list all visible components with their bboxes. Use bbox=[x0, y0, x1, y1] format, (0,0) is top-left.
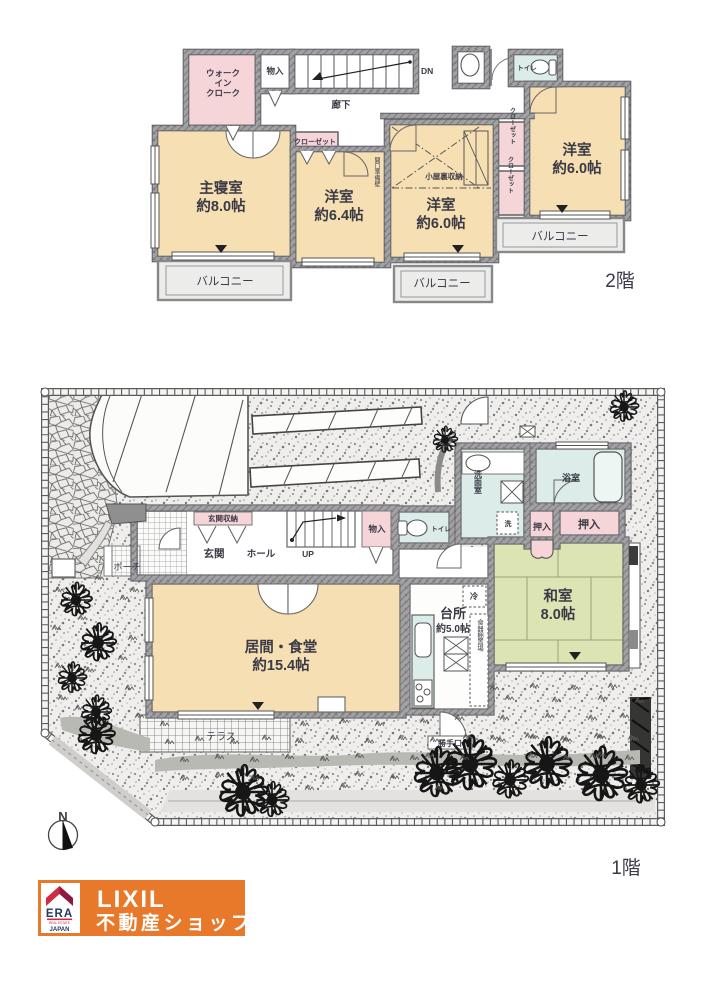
svg-text:和室: 和室 bbox=[544, 587, 573, 605]
svg-text:8.0帖: 8.0帖 bbox=[541, 605, 576, 623]
svg-text:DN: DN bbox=[421, 66, 433, 76]
svg-text:約5.0帖: 約5.0帖 bbox=[436, 622, 470, 635]
svg-text:2階: 2階 bbox=[605, 270, 635, 292]
svg-text:洗面室: 洗面室 bbox=[474, 469, 483, 495]
svg-text:JAPAN: JAPAN bbox=[50, 927, 70, 933]
svg-text:トイレ: トイレ bbox=[517, 64, 537, 72]
svg-text:トイレ: トイレ bbox=[431, 525, 451, 533]
svg-text:押入: 押入 bbox=[533, 521, 551, 532]
svg-text:約6.4帖: 約6.4帖 bbox=[314, 206, 364, 224]
svg-text:バルコニー: バルコニー bbox=[196, 275, 253, 288]
svg-text:台所: 台所 bbox=[440, 606, 466, 621]
svg-text:バルコニー: バルコニー bbox=[413, 277, 470, 290]
svg-text:ホール: ホール bbox=[247, 549, 276, 560]
svg-text:玄関収納: 玄関収納 bbox=[208, 513, 238, 523]
svg-text:居間・食堂: 居間・食堂 bbox=[245, 638, 318, 656]
svg-text:約15.4帖: 約15.4帖 bbox=[252, 656, 310, 674]
svg-text:バルコニー: バルコニー bbox=[531, 230, 588, 243]
svg-text:物入: 物入 bbox=[368, 524, 386, 534]
svg-text:小屋裏収納: 小屋裏収納 bbox=[425, 171, 463, 181]
svg-text:主寝室: 主寝室 bbox=[199, 179, 243, 197]
svg-text:LIXIL: LIXIL bbox=[97, 886, 166, 913]
svg-text:約6.0帖: 約6.0帖 bbox=[552, 159, 602, 177]
svg-text:クローゼット: クローゼット bbox=[294, 137, 336, 146]
svg-text:洋室: 洋室 bbox=[325, 188, 354, 206]
svg-text:押入: 押入 bbox=[578, 517, 600, 531]
svg-text:開口準備壁: 開口準備壁 bbox=[373, 157, 380, 187]
svg-text:ウォーク: ウォーク bbox=[206, 68, 240, 78]
svg-text:ERA: ERA bbox=[46, 908, 73, 920]
svg-text:洋室: 洋室 bbox=[563, 141, 592, 159]
svg-text:冷: 冷 bbox=[470, 591, 478, 601]
svg-text:テラス: テラス bbox=[206, 731, 236, 743]
svg-text:浴室: 浴室 bbox=[562, 472, 580, 483]
svg-text:不動産ショップ: 不動産ショップ bbox=[96, 911, 254, 934]
svg-text:UP: UP bbox=[302, 549, 314, 559]
svg-text:クローゼット: クローゼット bbox=[507, 156, 514, 194]
svg-text:洗: 洗 bbox=[505, 519, 512, 528]
svg-text:玄関: 玄関 bbox=[204, 547, 225, 560]
svg-text:REAL ESTATE: REAL ESTATE bbox=[49, 921, 70, 925]
svg-text:クローゼット: クローゼット bbox=[509, 107, 516, 145]
svg-text:イン: イン bbox=[214, 78, 232, 88]
svg-text:約6.0帖: 約6.0帖 bbox=[416, 214, 466, 232]
svg-text:ポーチ: ポーチ bbox=[113, 562, 140, 572]
svg-text:クローク: クローク bbox=[206, 88, 240, 98]
svg-text:洋室: 洋室 bbox=[427, 196, 456, 214]
svg-text:廊下: 廊下 bbox=[331, 99, 351, 111]
svg-text:勝手口: 勝手口 bbox=[438, 738, 462, 748]
svg-text:約8.0帖: 約8.0帖 bbox=[196, 197, 246, 215]
svg-text:1階: 1階 bbox=[611, 857, 641, 879]
svg-text:物入: 物入 bbox=[266, 66, 284, 76]
